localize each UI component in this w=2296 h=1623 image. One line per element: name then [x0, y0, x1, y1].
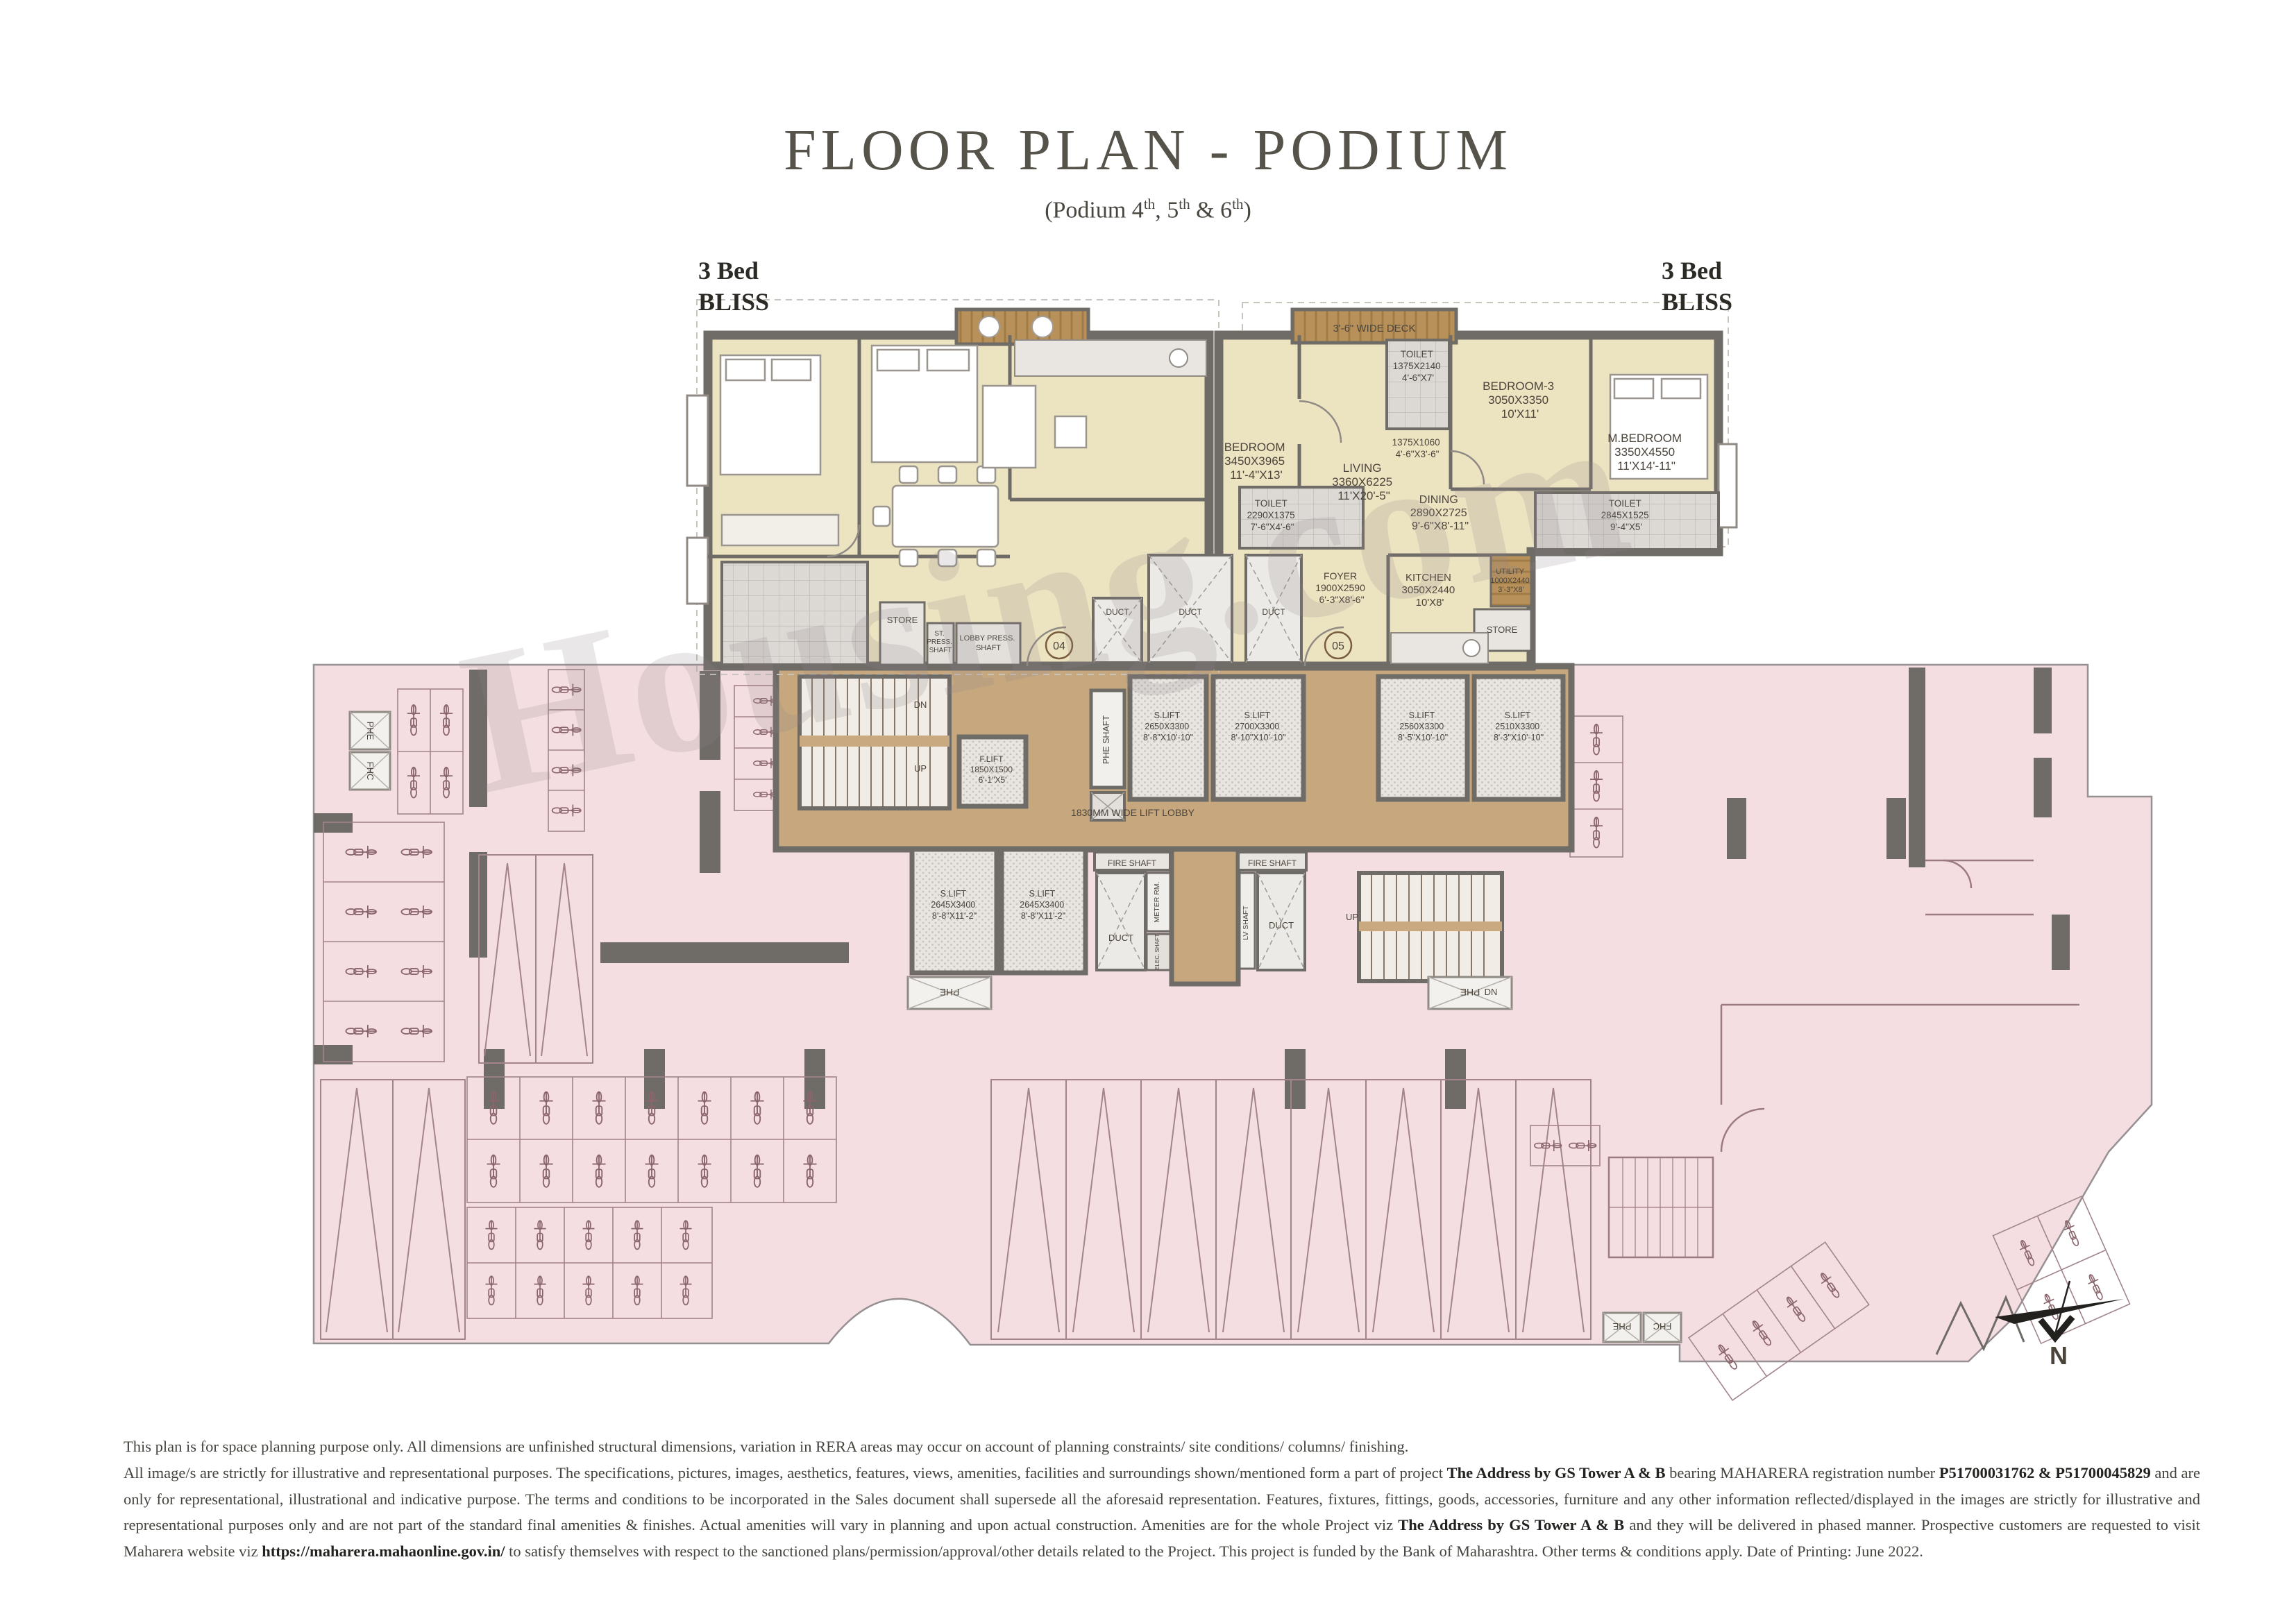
disclaimer-paragraph: All image/s are strictly for illustrativ…	[124, 1460, 2200, 1564]
maharera-url: https://maharera.mahaonline.gov.in/	[262, 1543, 505, 1560]
staircase-top	[800, 677, 949, 808]
fhc-west: FHC	[365, 762, 375, 781]
stair-bottom-dn: DN	[1485, 987, 1498, 997]
staircase-bottom	[1359, 873, 1502, 981]
bedroom-label: BEDROOM 3450X3965 11'-4"X13'	[1224, 441, 1289, 482]
stair-top-dn: DN	[914, 699, 927, 710]
north-label: N	[2050, 1341, 2068, 1370]
svg-text:05: 05	[1332, 640, 1344, 652]
duct-label-5: DUCT	[1269, 920, 1294, 931]
stair-bottom-up: UP	[1346, 912, 1358, 922]
fire-shaft-left-label: FIRE SHAFT	[1108, 858, 1157, 868]
phe-left-mirrored: PHE	[940, 987, 960, 998]
unit-left-type-label: 3 BedBLISS	[698, 255, 769, 318]
lv-shaft-label: LV SHAFT	[1242, 906, 1250, 940]
phe-south: PHE	[1612, 1321, 1631, 1332]
store-right-label: STORE	[1487, 624, 1518, 635]
dining-label: DINING 2890X2725 9'-6"X8'-11"	[1410, 494, 1470, 532]
phe-west: PHE	[365, 722, 375, 740]
elec-shaft-label: ELEC. SHAFT	[1154, 934, 1160, 970]
duct-label-1: DUCT	[1106, 607, 1129, 617]
page-subtitle: (Podium 4th, 5th & 6th)	[0, 196, 2296, 223]
store-left-label: STORE	[887, 615, 918, 625]
meter-rm-label: METER RM.	[1153, 882, 1161, 923]
disclaimer-line1: This plan is for space planning purpose …	[124, 1434, 2200, 1460]
stair-top-up: UP	[914, 763, 927, 774]
fhc-south: FHC	[1653, 1321, 1672, 1332]
lift-lobby-label: 1830MM WIDE LIFT LOBBY	[1071, 807, 1195, 818]
fire-shaft-right-label: FIRE SHAFT	[1248, 858, 1297, 868]
duct-label-4: DUCT	[1108, 933, 1133, 943]
duct-label-3: DUCT	[1262, 607, 1285, 617]
phe-right-mirrored: PHE	[1460, 987, 1480, 998]
page-title: FLOOR PLAN - PODIUM	[0, 117, 2296, 184]
phe-shaft-label: PHE SHAFT	[1101, 715, 1111, 765]
master-bedroom-label: M.BEDROOM 3350X4550 11'X14'-11"	[1607, 432, 1685, 473]
floor-plan-drawing: N	[0, 0, 2296, 1623]
duct-label-2: DUCT	[1179, 607, 1202, 617]
deck-label: 3'-6" WIDE DECK	[1333, 323, 1415, 334]
unit-right-type-label: 3 BedBLISS	[1662, 255, 1732, 318]
svg-text:04: 04	[1053, 640, 1065, 652]
